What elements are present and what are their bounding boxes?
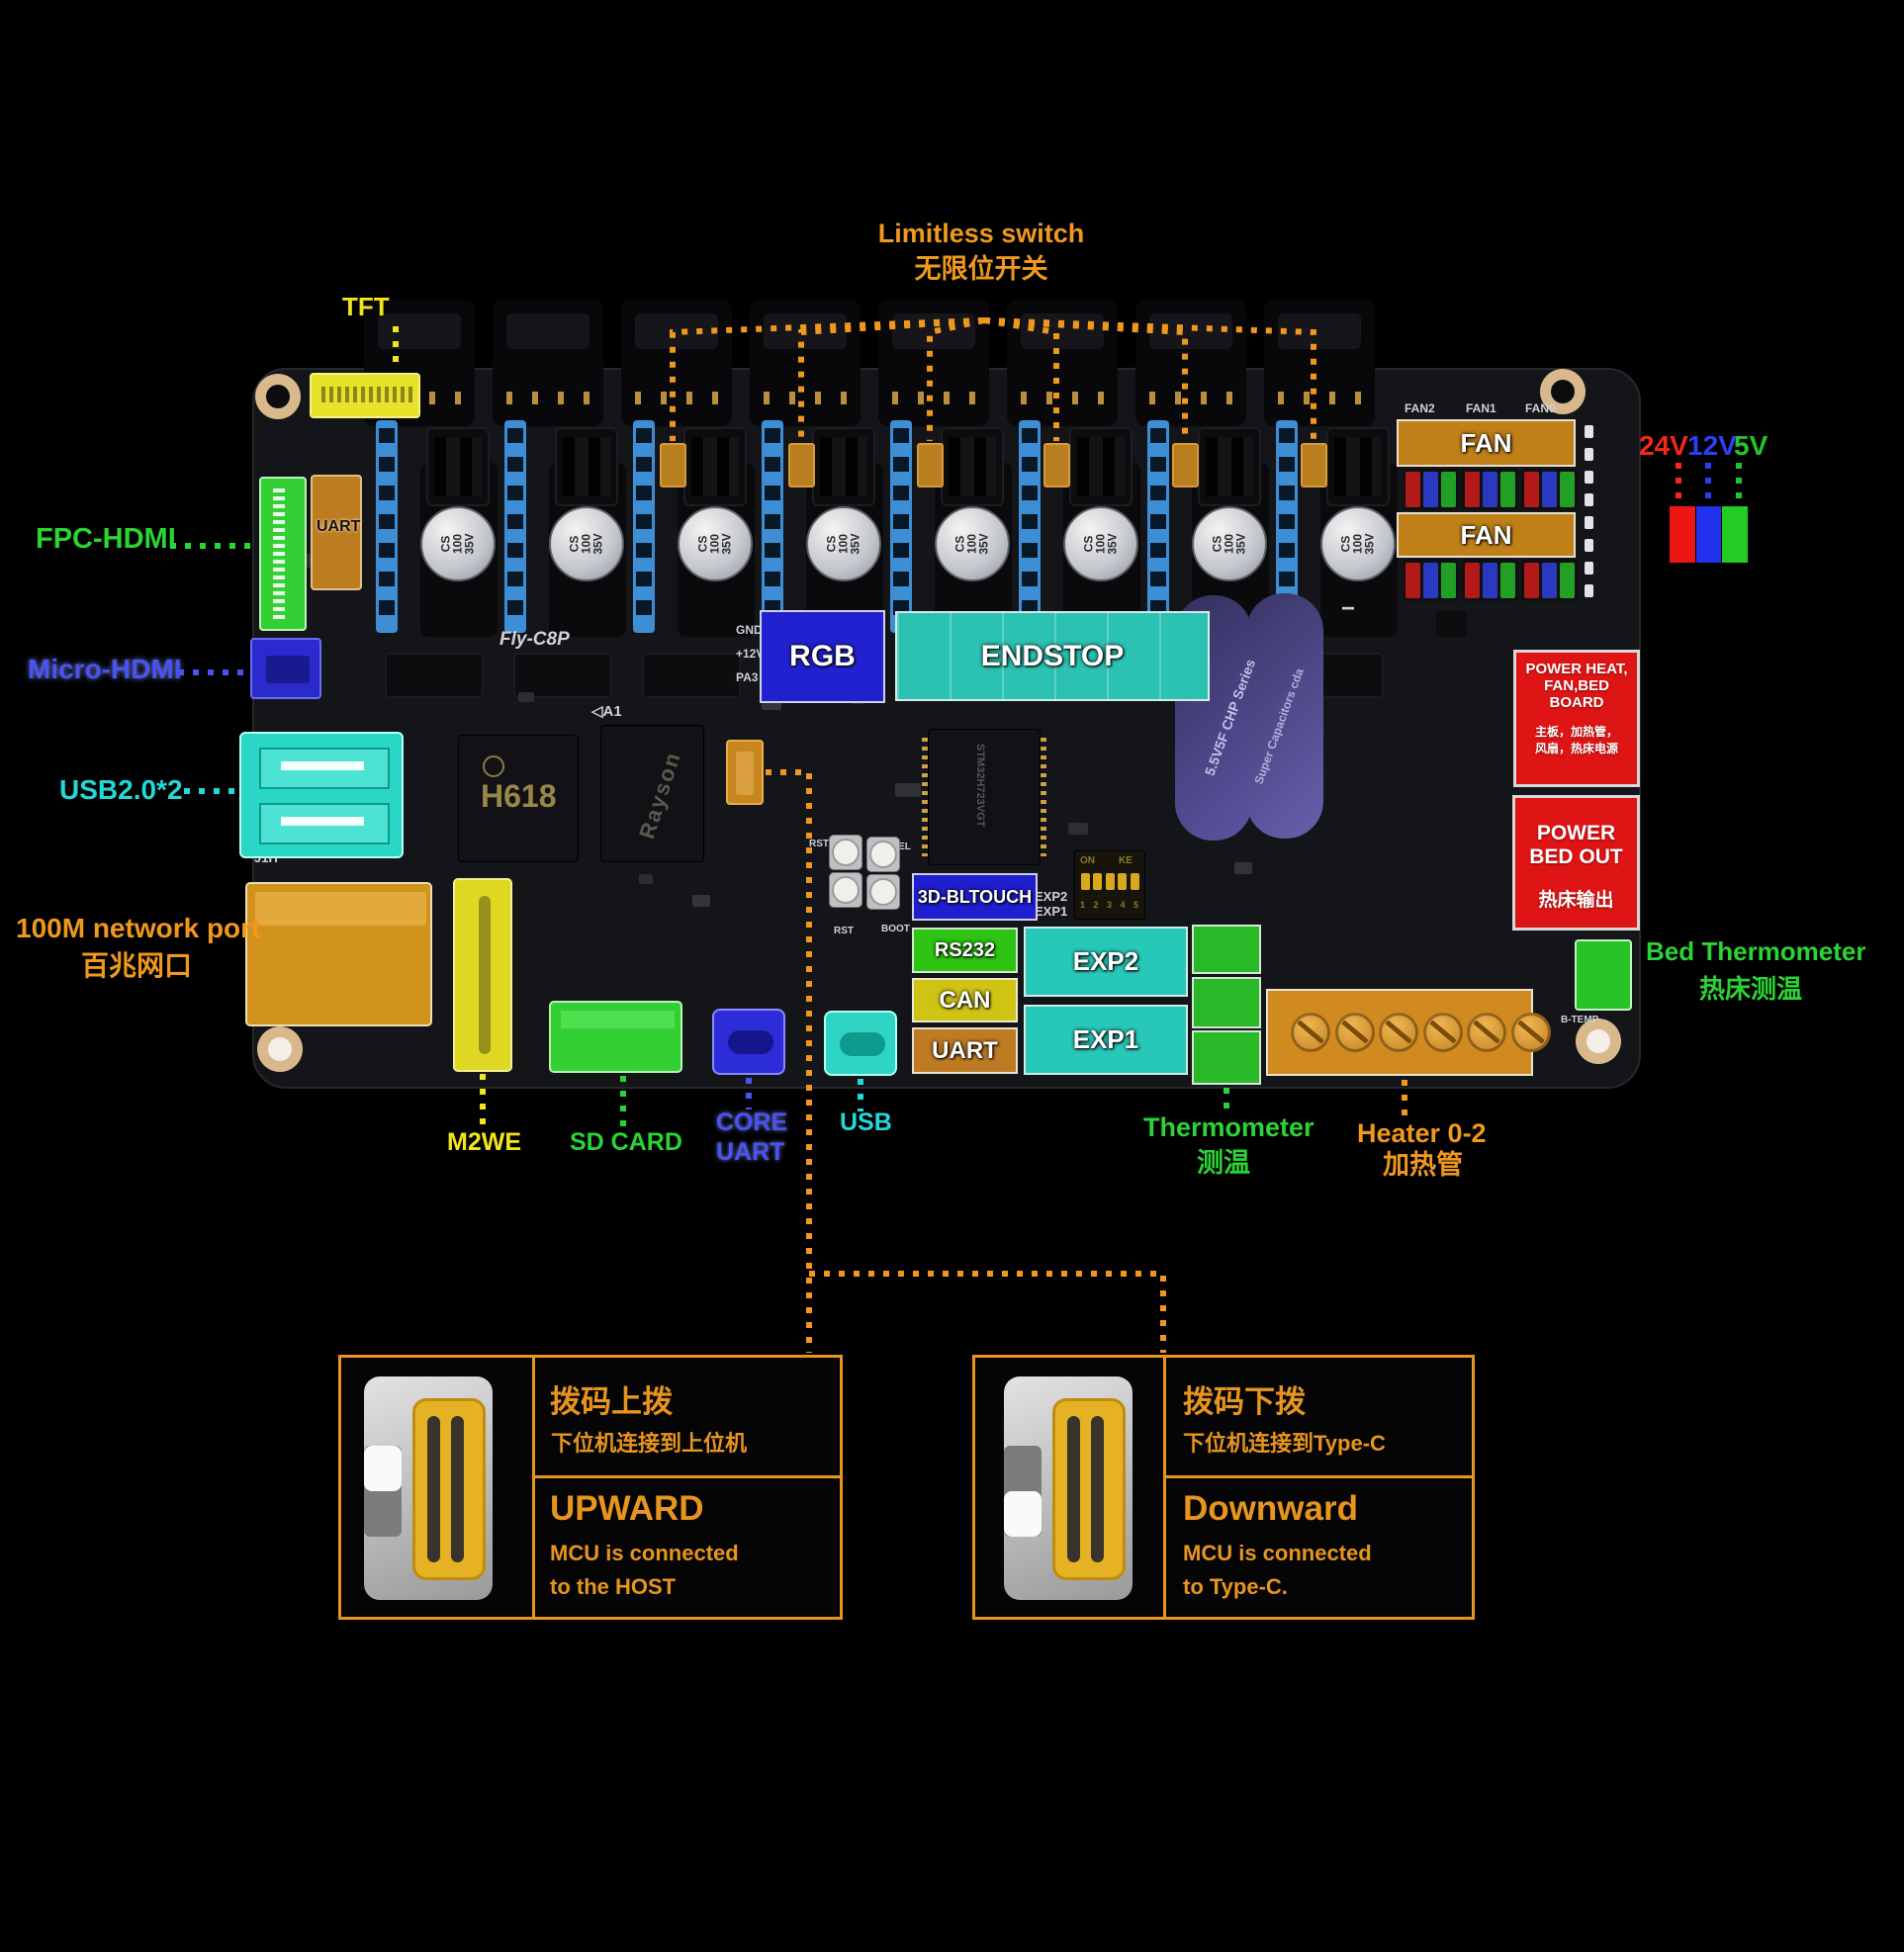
thermometer-label-zh: 测温 bbox=[1197, 1149, 1250, 1179]
usb2-label: USB2.0*2 bbox=[59, 775, 183, 806]
limitless-switch-label-en: Limitless switch bbox=[878, 220, 1085, 249]
rst-button[interactable] bbox=[829, 872, 862, 908]
silkscreen-pa3: PA3 bbox=[736, 670, 758, 684]
limitless-switch-pad bbox=[1172, 443, 1199, 488]
downward-zh-title: 拨码下拨 bbox=[1183, 1376, 1306, 1421]
motor-connector-pins bbox=[1021, 392, 1104, 404]
silkscreen-fan2: FAN2 bbox=[1405, 401, 1435, 415]
driver-header-strip bbox=[890, 420, 912, 633]
fpc-hdmi-label: FPC-HDMI bbox=[36, 524, 176, 556]
thermometer-connector-2[interactable] bbox=[1192, 977, 1261, 1028]
motor-connector-pins bbox=[892, 392, 975, 404]
legend-swatch-cell bbox=[1722, 506, 1749, 563]
smd-part bbox=[1068, 823, 1088, 835]
power-bed-out-warning: POWER BED OUT 热床输出 bbox=[1512, 795, 1640, 931]
uart-bottom-connector[interactable]: UART bbox=[912, 1027, 1018, 1074]
driver-header-strip bbox=[376, 420, 398, 633]
ethernet-port[interactable] bbox=[245, 882, 432, 1026]
fan-voltage-jumpers bbox=[1462, 560, 1518, 601]
tft-pins bbox=[321, 387, 412, 402]
motor-connector-pins bbox=[635, 392, 718, 404]
jumper-header bbox=[1198, 427, 1261, 506]
led bbox=[1585, 471, 1593, 484]
smd-part bbox=[518, 692, 534, 702]
mcu-select-switch[interactable] bbox=[726, 740, 764, 805]
upward-line2: to the HOST bbox=[550, 1574, 676, 1600]
limitless-switch-pad bbox=[1301, 443, 1327, 488]
silkscreen-a1: ◁A1 bbox=[591, 702, 622, 720]
exp1-connector[interactable]: EXP1 bbox=[1024, 1005, 1188, 1075]
boot-button[interactable] bbox=[866, 874, 900, 910]
network-label-zh: 百兆网口 bbox=[81, 951, 192, 982]
reset-button[interactable] bbox=[829, 835, 862, 870]
bed-thermometer-connector[interactable] bbox=[1575, 939, 1632, 1011]
limitless-switch-label-zh: 无限位开关 bbox=[915, 255, 1048, 285]
capacitor: CS 100 35V bbox=[1192, 506, 1267, 581]
usb-usbc[interactable] bbox=[824, 1011, 897, 1076]
core-uart-usbc[interactable] bbox=[712, 1009, 785, 1075]
terminal-screw bbox=[1423, 1013, 1463, 1052]
mount-hole-bottom-left bbox=[257, 1026, 303, 1072]
tft-label: TFT bbox=[342, 293, 390, 321]
fan-connector-row1[interactable]: FAN bbox=[1397, 419, 1576, 467]
led bbox=[1585, 584, 1593, 597]
thermometer-connector-3[interactable] bbox=[1192, 1030, 1261, 1085]
thermometer-connector-1[interactable] bbox=[1192, 925, 1261, 974]
smd-part bbox=[639, 874, 653, 884]
bltouch-connector[interactable]: 3D-BLTOUCH bbox=[912, 873, 1038, 921]
upward-zh-sub: 下位机连接到上位机 bbox=[551, 1426, 747, 1458]
mount-hole-top-left bbox=[255, 374, 301, 419]
capacitor: CS 100 35V bbox=[1320, 506, 1396, 581]
fan-voltage-jumpers bbox=[1403, 469, 1459, 510]
downward-zh-sub: 下位机连接到Type-C bbox=[1183, 1426, 1386, 1458]
mcu-chip: STM32H723VGT bbox=[928, 729, 1041, 865]
page: { "colors": { "orange": "#F0981E", "yell… bbox=[0, 0, 1904, 1952]
smd-part bbox=[692, 895, 710, 907]
dip-slider bbox=[1106, 873, 1115, 890]
dip-switch[interactable]: ON KE 1 2 3 4 5 bbox=[1074, 850, 1145, 920]
upward-switch-graphic bbox=[364, 1376, 493, 1600]
jumper-header bbox=[555, 427, 618, 506]
led bbox=[1585, 425, 1593, 438]
smd-part bbox=[895, 783, 921, 797]
legend-12v-label: 12V bbox=[1687, 431, 1737, 462]
limitless-switch-pad bbox=[917, 443, 944, 488]
capacitor: CS 100 35V bbox=[935, 506, 1010, 581]
silkscreen-btemp: B-TEMP bbox=[1561, 1015, 1598, 1025]
thermometer-label-en: Thermometer bbox=[1143, 1113, 1315, 1143]
motor-connector-pins bbox=[1278, 392, 1361, 404]
downward-line2: to Type-C. bbox=[1183, 1574, 1288, 1600]
aux-header bbox=[385, 653, 484, 698]
aux-header bbox=[642, 653, 741, 698]
soc-logo bbox=[483, 755, 504, 777]
exp2-connector[interactable]: EXP2 bbox=[1024, 927, 1188, 997]
led bbox=[1585, 516, 1593, 529]
silkscreen-boot: BOOT bbox=[881, 924, 910, 934]
jumper-header bbox=[683, 427, 747, 506]
capacitor: CS 100 35V bbox=[678, 506, 753, 581]
micro-hdmi-connector[interactable] bbox=[250, 638, 321, 699]
fel-button[interactable] bbox=[866, 837, 900, 872]
silkscreen-exp1: EXP1 bbox=[1035, 904, 1067, 919]
micro-hdmi-label: Micro-HDMI bbox=[28, 655, 182, 685]
smd-part bbox=[1234, 862, 1252, 874]
terminal-screw bbox=[1511, 1013, 1551, 1052]
silkscreen-rst: RST bbox=[834, 926, 854, 936]
dip-slider bbox=[1131, 873, 1139, 890]
legend-5v-label: 5V bbox=[1734, 431, 1768, 462]
core-uart-label-line1: CORE bbox=[716, 1109, 787, 1137]
driver-header-strip bbox=[1019, 420, 1041, 633]
led bbox=[1585, 493, 1593, 506]
legend-24v-label: 24V bbox=[1639, 431, 1688, 462]
dip-slider bbox=[1118, 873, 1127, 890]
legend-swatch bbox=[1670, 506, 1749, 563]
terminal-screw bbox=[1467, 1013, 1506, 1052]
power-board-warning: POWER HEAT, FAN,BED BOARD 主板，加热管， 风扇，热床电… bbox=[1513, 650, 1640, 787]
tft-connector[interactable] bbox=[310, 373, 420, 418]
jumper-header bbox=[1069, 427, 1133, 506]
smd-part bbox=[1436, 611, 1466, 637]
rs232-connector[interactable]: RS232 bbox=[912, 928, 1018, 973]
silkscreen-minus: − bbox=[1341, 595, 1355, 623]
dip-slider bbox=[1093, 873, 1102, 890]
capacitor: CS 100 35V bbox=[549, 506, 624, 581]
soc-chip: H618 bbox=[458, 735, 579, 862]
upward-line1: MCU is connected bbox=[550, 1541, 739, 1566]
fpc-hdmi-connector[interactable] bbox=[259, 477, 307, 631]
sd-card-slot[interactable] bbox=[549, 1001, 682, 1073]
downward-line1: MCU is connected bbox=[1183, 1541, 1372, 1566]
limitless-switch-pad bbox=[660, 443, 686, 488]
driver-header-strip bbox=[504, 420, 526, 633]
dip-slider bbox=[1081, 873, 1090, 890]
ram-chip: Rayson bbox=[600, 725, 704, 862]
heater-label-zh: 加热管 bbox=[1383, 1151, 1463, 1181]
capacitor: CS 100 35V bbox=[420, 506, 496, 581]
limitless-switch-pad bbox=[1043, 443, 1070, 488]
terminal-screw bbox=[1291, 1013, 1330, 1052]
silkscreen-gnd: GND bbox=[736, 623, 763, 637]
network-label-en: 100M network port bbox=[16, 914, 260, 944]
m2we-label: M2WE bbox=[447, 1129, 521, 1157]
endstop-connectors[interactable]: ENDSTOP bbox=[895, 611, 1210, 701]
silkscreen-fan1: FAN1 bbox=[1466, 401, 1496, 415]
legend-swatch-cell bbox=[1696, 506, 1723, 563]
driver-header-strip bbox=[633, 420, 655, 633]
jumper-header bbox=[1326, 427, 1390, 506]
fan-connector-row2[interactable]: FAN bbox=[1397, 512, 1576, 558]
silkscreen-rst-top: RST bbox=[809, 839, 829, 849]
motor-connector-pins bbox=[1149, 392, 1232, 404]
fan-voltage-jumpers bbox=[1521, 560, 1578, 601]
capacitor: CS 100 35V bbox=[806, 506, 881, 581]
sd-card-label: SD CARD bbox=[570, 1129, 682, 1157]
terminal-screw bbox=[1335, 1013, 1375, 1052]
uart-top-connector[interactable]: UART bbox=[311, 475, 362, 590]
silkscreen-exp2: EXP2 bbox=[1035, 889, 1067, 904]
fan-voltage-jumpers bbox=[1521, 469, 1578, 510]
motor-connector-pins bbox=[764, 392, 847, 404]
fan-voltage-jumpers bbox=[1462, 469, 1518, 510]
driver-header-strip bbox=[1147, 420, 1169, 633]
jumper-header bbox=[426, 427, 490, 506]
limitless-switch-pad bbox=[788, 443, 815, 488]
fpc-pins bbox=[273, 488, 285, 619]
jumper-header bbox=[941, 427, 1004, 506]
bed-thermometer-label-zh: 热床测温 bbox=[1699, 975, 1802, 1004]
uart-top-label: UART bbox=[317, 518, 360, 536]
heater-terminal-block[interactable] bbox=[1266, 989, 1533, 1076]
micro-hdmi-slot bbox=[266, 656, 310, 683]
usb-label: USB bbox=[840, 1109, 892, 1137]
led bbox=[1585, 539, 1593, 552]
bed-thermometer-label-en: Bed Thermometer bbox=[1646, 937, 1866, 966]
downward-title: Downward bbox=[1183, 1489, 1358, 1529]
core-uart-label-line2: UART bbox=[716, 1139, 784, 1167]
usb2-connector[interactable] bbox=[239, 732, 404, 858]
downward-switch-graphic bbox=[1004, 1376, 1133, 1600]
capacitor: CS 100 35V bbox=[1063, 506, 1138, 581]
led bbox=[1585, 562, 1593, 575]
motor-connector-pins bbox=[506, 392, 589, 404]
silkscreen-model: Fly-C8P bbox=[499, 629, 570, 651]
m2-slot[interactable] bbox=[453, 878, 512, 1072]
led bbox=[1585, 448, 1593, 461]
silkscreen-fan0: FAN0 bbox=[1525, 401, 1556, 415]
can-connector[interactable]: CAN bbox=[912, 978, 1018, 1022]
upward-title: UPWARD bbox=[550, 1489, 704, 1529]
heater-label-en: Heater 0-2 bbox=[1357, 1119, 1487, 1149]
jumper-header bbox=[812, 427, 875, 506]
upward-zh-title: 拨码上拨 bbox=[550, 1376, 673, 1421]
driver-header-strip bbox=[762, 420, 783, 633]
fan-voltage-jumpers bbox=[1403, 560, 1459, 601]
terminal-screw bbox=[1379, 1013, 1418, 1052]
legend-swatch-cell bbox=[1670, 506, 1696, 563]
rgb-connector[interactable]: RGB bbox=[760, 610, 885, 703]
